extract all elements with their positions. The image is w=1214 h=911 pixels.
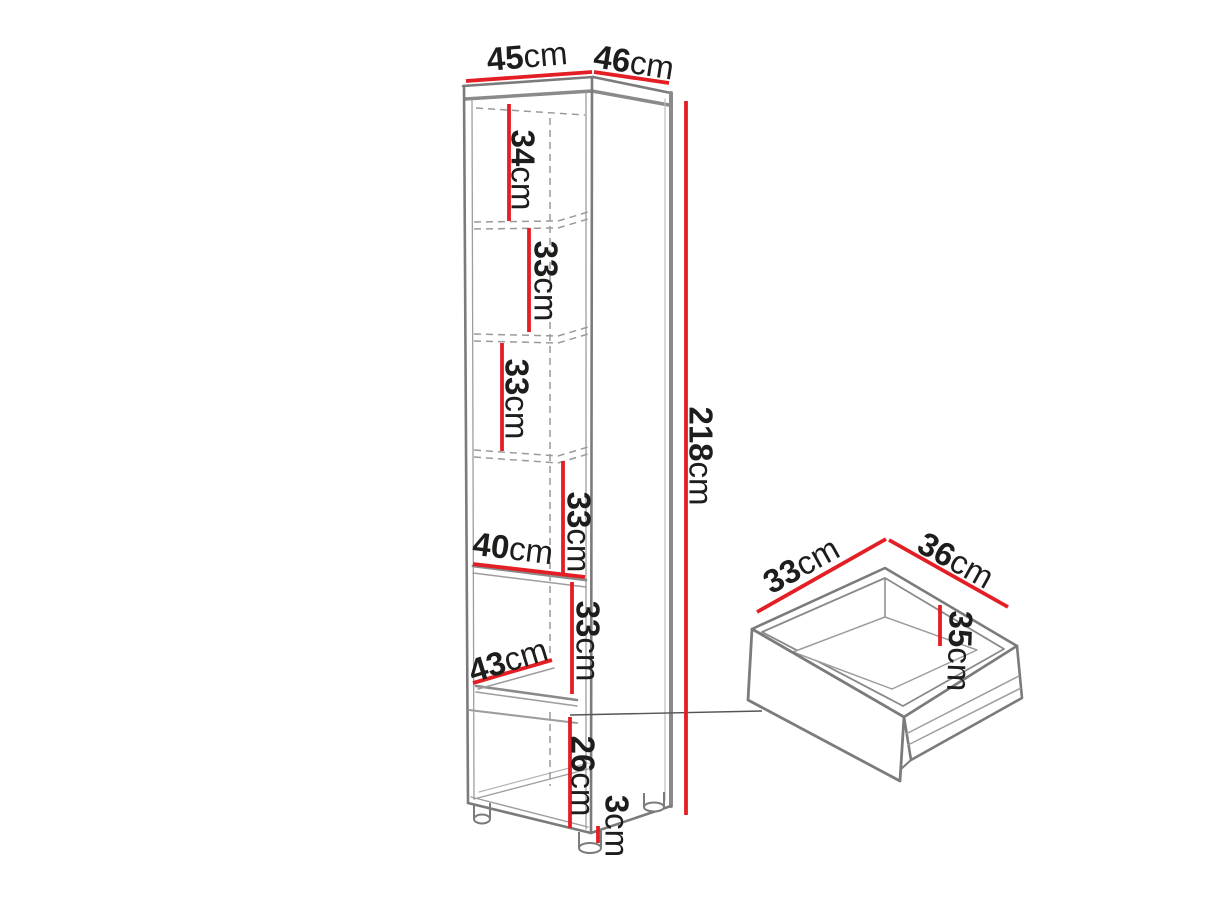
diagram-canvas (0, 0, 1214, 911)
shelf-solid-lower-bottom (469, 710, 577, 723)
dim-label-section4-33cm: 33cm (563, 492, 596, 573)
hidden-shelf-1-bottom (474, 219, 588, 229)
dim-unit: cm (499, 395, 536, 439)
dim-value: 26 (565, 736, 602, 773)
dim-label-feet-height-3cm: 3cm (601, 795, 634, 857)
dim-unit: cm (505, 166, 542, 210)
dim-label-shelf-width-40cm: 40cm (471, 527, 555, 570)
dim-value: 33 (561, 492, 598, 529)
dim-label-section2-33cm: 33cm (530, 241, 563, 322)
dim-label-section3-33cm: 33cm (501, 359, 534, 440)
shelf-solid-lower-front (476, 686, 577, 700)
hidden-shelf-3-bottom (474, 454, 588, 463)
dim-value: 218 (683, 406, 720, 461)
hidden-shelf-2-top (474, 327, 588, 336)
dim-value: 34 (505, 130, 542, 167)
dim-label-top-width-45cm: 45cm (485, 36, 568, 76)
cabinet-outline (463, 77, 671, 833)
dim-unit: cm (940, 647, 979, 692)
dim-value: 33 (528, 241, 565, 278)
furniture-dimension-diagram: 45cm 46cm 34cm 33cm 33cm 218cm 33cm 40cm… (0, 0, 1214, 911)
drawer-outline (748, 568, 1022, 781)
dim-unit: cm (522, 34, 569, 75)
dim-unit: cm (565, 772, 602, 816)
drawer-leader-line (570, 711, 762, 715)
cabinet-left-edge (464, 86, 468, 803)
dim-label-drawer-height-35cm: 35cm (942, 610, 978, 692)
dim-value: 45 (485, 38, 525, 78)
dim-unit: cm (683, 462, 720, 506)
dim-unit: cm (507, 529, 555, 571)
dim-unit: cm (599, 813, 636, 857)
foot-rear-right-base (644, 803, 664, 812)
cabinet-top-band (465, 91, 669, 105)
dim-unit: cm (570, 637, 607, 681)
dim-label-section5-33cm: 33cm (572, 601, 605, 682)
dim-value: 46 (591, 37, 633, 79)
dim-unit: cm (561, 528, 598, 572)
dim-label-section1-34cm: 34cm (507, 130, 540, 211)
dim-value: 35 (942, 610, 980, 648)
dim-value: 33 (570, 601, 607, 638)
dim-label-section6-26cm: 26cm (567, 736, 600, 817)
hidden-shelf-2-bottom (474, 334, 588, 343)
dim-value: 40 (471, 525, 512, 566)
dim-unit: cm (528, 277, 565, 321)
foot-front-left-base (474, 815, 490, 824)
hidden-shelf-1-top (474, 212, 588, 222)
cabinet-front-right-edge (591, 77, 592, 832)
cabinet-left-inner-edge (472, 101, 474, 799)
dim-value: 33 (499, 359, 536, 396)
hidden-shelf-3-top (474, 447, 588, 456)
dim-label-total-height-218cm: 218cm (685, 406, 718, 505)
dim-value: 3 (599, 795, 636, 813)
dim-unit: cm (628, 43, 677, 86)
hidden-top-back-edge (476, 108, 585, 115)
